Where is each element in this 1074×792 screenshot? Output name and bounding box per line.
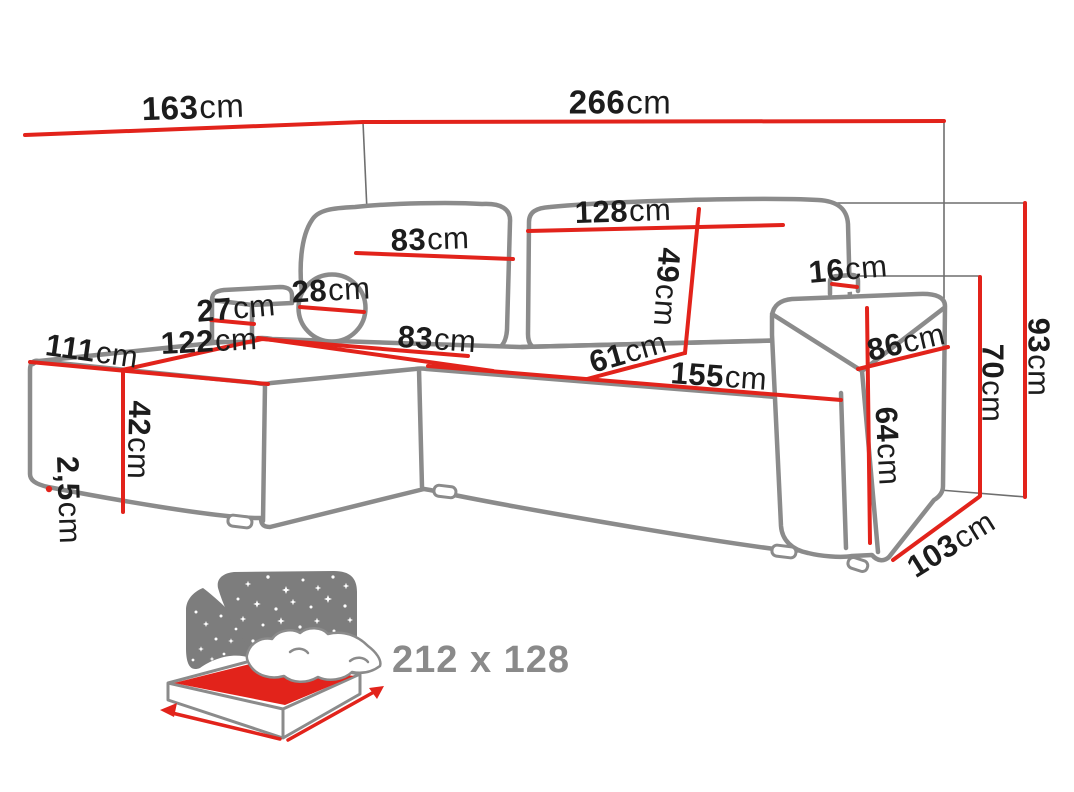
dim-28-label: 28cm (291, 272, 371, 307)
dim-42-label: 42cm (123, 400, 155, 479)
dim-155-label: 155cm (670, 357, 768, 395)
dimension-diagram: 163cm 266cm 128cm 83cm 49cm 16cm 27cm 28… (0, 0, 1074, 792)
dim-122-label: 122cm (160, 323, 258, 359)
dimension-line-266 (363, 121, 944, 122)
dim-64-label: 64cm (870, 406, 905, 486)
dim-128-label: 128cm (574, 194, 672, 228)
sofa-bed-sleeping-icon (160, 571, 384, 740)
dim-266-label: 266cm (569, 86, 672, 119)
sleeping-size-label: 212 x 128 (392, 641, 570, 679)
dim-70-label: 70cm (978, 344, 1009, 423)
dim-163-label: 163cm (141, 89, 245, 126)
dim-16-label: 16cm (807, 250, 888, 288)
dim-93-label: 93cm (1024, 318, 1055, 397)
dim-83-seat-label: 83cm (397, 321, 478, 357)
dim-49-label: 49cm (649, 247, 685, 328)
dim-83-backrest-label: 83cm (390, 222, 470, 256)
dim-2-5-label: 2,5cm (52, 456, 86, 545)
